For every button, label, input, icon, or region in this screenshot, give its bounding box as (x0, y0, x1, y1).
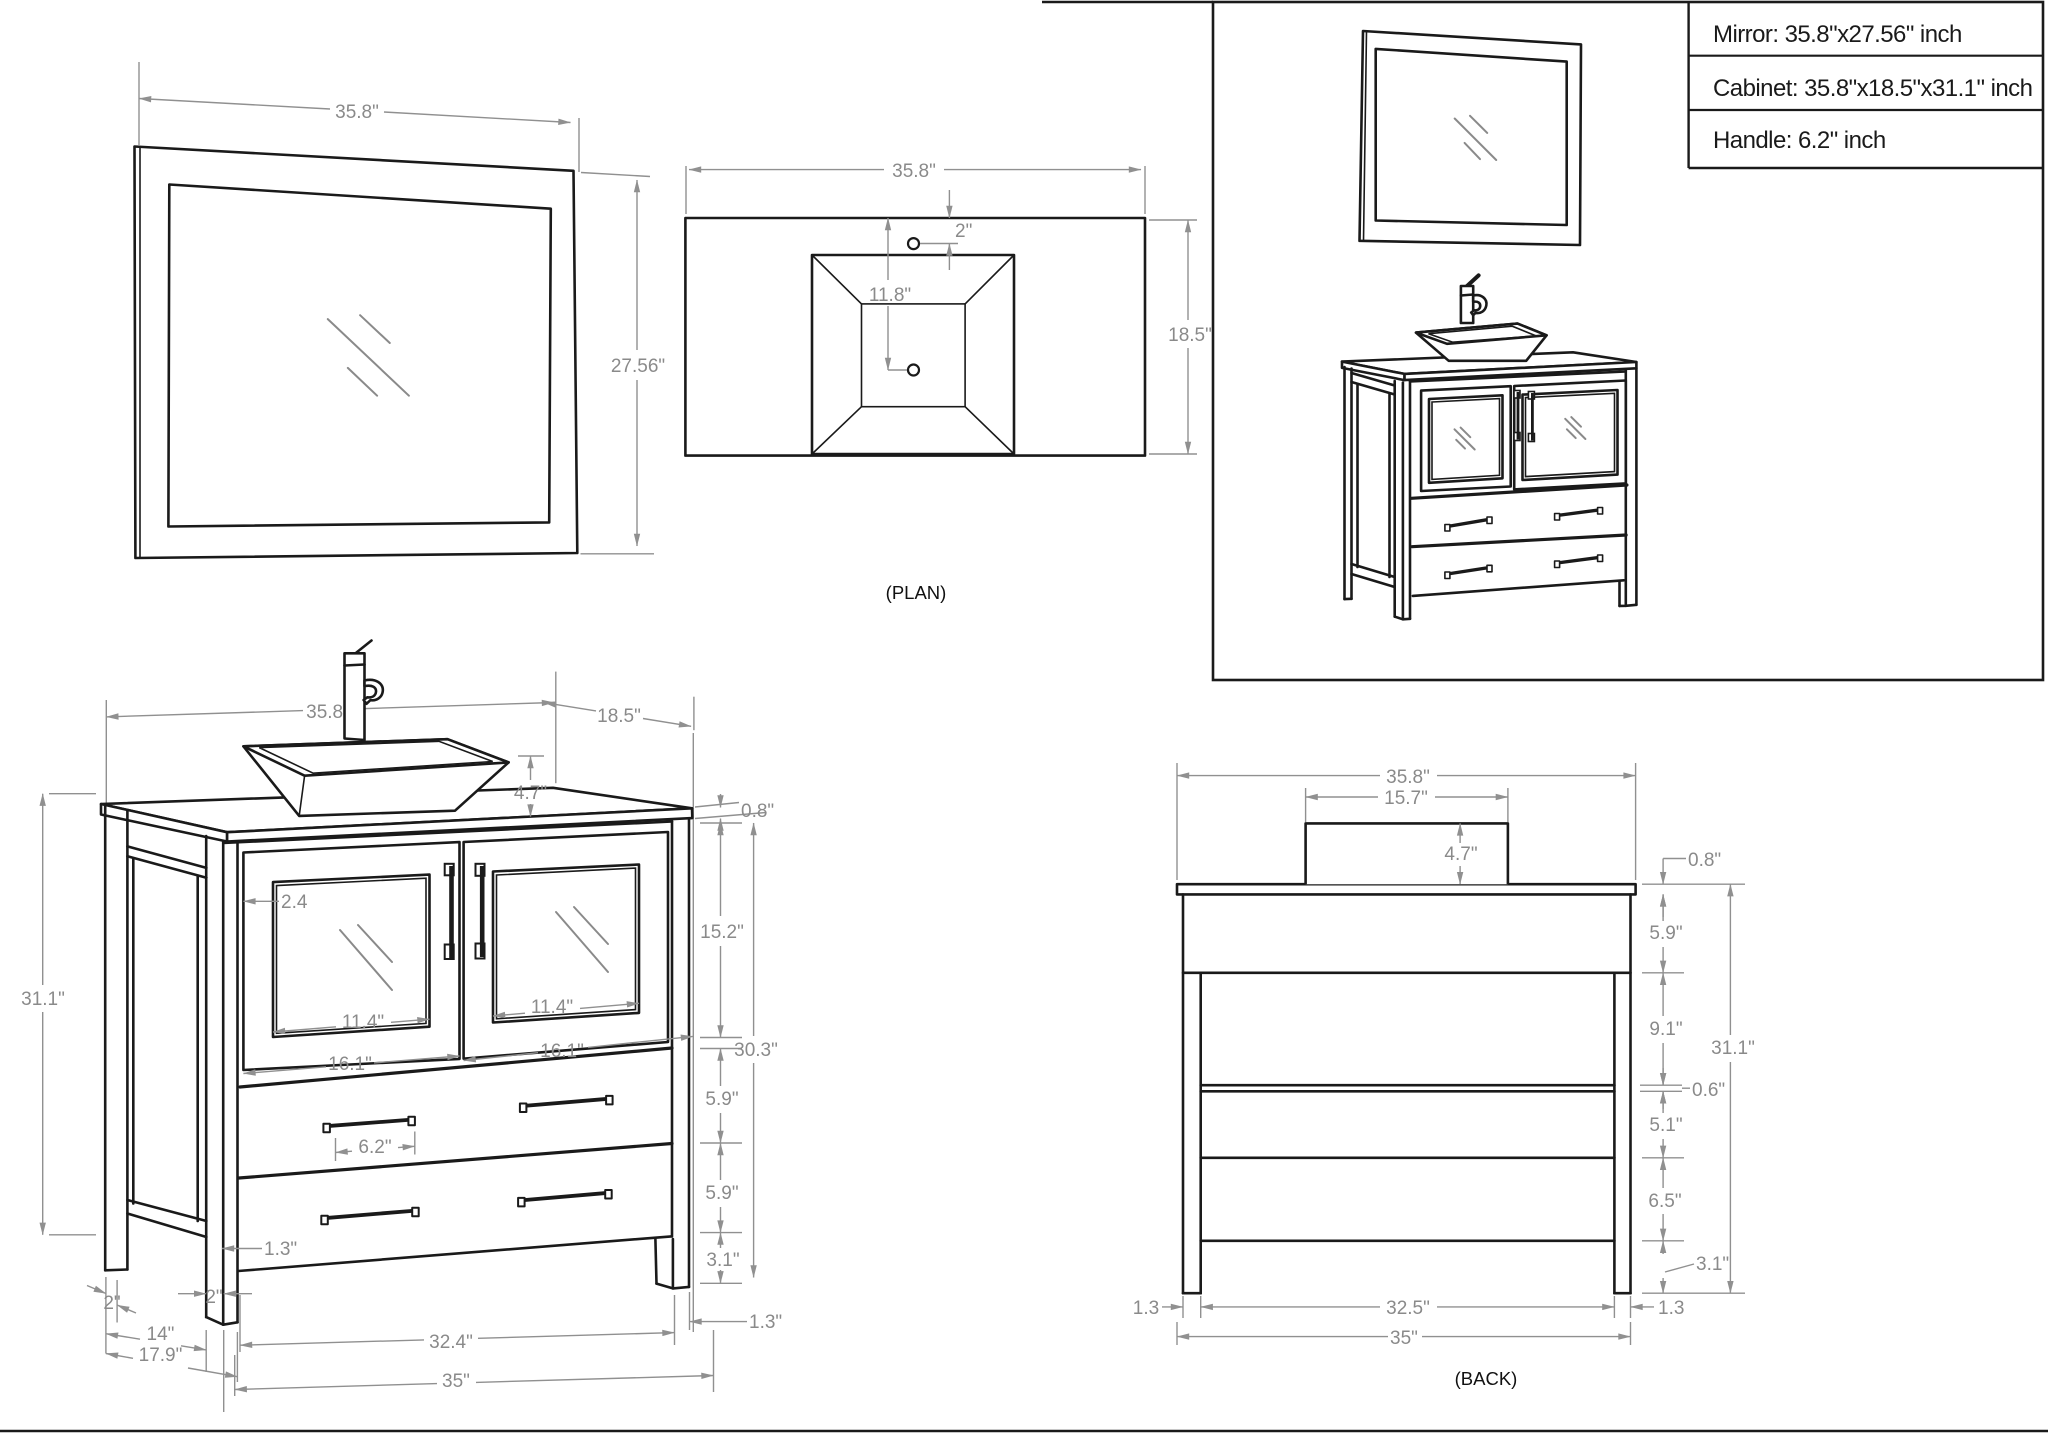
svg-text:5.9": 5.9" (705, 1089, 738, 1110)
svg-text:14": 14" (147, 1324, 175, 1345)
svg-text:18.5": 18.5" (597, 706, 641, 727)
svg-text:5.9": 5.9" (705, 1183, 738, 1204)
svg-text:17.9": 17.9" (139, 1345, 183, 1366)
svg-text:(PLAN): (PLAN) (886, 582, 947, 603)
svg-text:35.8": 35.8" (335, 102, 379, 123)
svg-text:11.8": 11.8" (869, 285, 911, 306)
svg-text:3.1": 3.1" (706, 1250, 739, 1271)
svg-text:Cabinet: 35.8"x18.5"x31.1" in: Cabinet: 35.8"x18.5"x31.1" inch (1713, 75, 2032, 102)
svg-text:0.8": 0.8" (741, 801, 774, 822)
svg-text:1.3: 1.3 (1133, 1298, 1159, 1319)
svg-text:6.2": 6.2" (358, 1137, 391, 1158)
svg-text:31.1": 31.1" (1711, 1038, 1755, 1059)
svg-text:16.1": 16.1" (328, 1054, 372, 1075)
svg-text:11.4": 11.4" (531, 997, 573, 1018)
svg-text:2": 2" (205, 1287, 222, 1308)
svg-text:35.8": 35.8" (1386, 767, 1430, 788)
svg-text:2": 2" (955, 221, 972, 242)
svg-text:1.3": 1.3" (264, 1239, 297, 1260)
svg-text:16.1": 16.1" (540, 1041, 584, 1062)
svg-text:Handle: 6.2" inch: Handle: 6.2" inch (1713, 127, 1886, 154)
svg-text:1.3": 1.3" (749, 1312, 782, 1333)
svg-text:1.3: 1.3 (1658, 1298, 1684, 1319)
svg-text:30.3": 30.3" (734, 1040, 778, 1061)
svg-text:Mirror: 35.8"x27.56" inch: Mirror: 35.8"x27.56" inch (1713, 21, 1962, 48)
svg-text:32.4": 32.4" (429, 1332, 473, 1353)
svg-text:0.8": 0.8" (1688, 850, 1721, 871)
svg-text:0.6": 0.6" (1692, 1080, 1725, 1101)
svg-text:6.5": 6.5" (1648, 1191, 1681, 1212)
svg-text:2.4: 2.4 (281, 892, 308, 913)
svg-text:5.9": 5.9" (1649, 923, 1682, 944)
svg-text:5.1": 5.1" (1649, 1115, 1682, 1136)
svg-text:11.4": 11.4" (342, 1012, 384, 1033)
svg-text:35": 35" (442, 1371, 470, 1392)
svg-text:31.1": 31.1" (21, 989, 65, 1010)
svg-text:32.5": 32.5" (1386, 1298, 1430, 1319)
svg-text:35": 35" (1390, 1328, 1418, 1349)
svg-text:15.7": 15.7" (1384, 788, 1428, 809)
svg-text:3.1": 3.1" (1696, 1254, 1729, 1275)
svg-text:2": 2" (103, 1293, 120, 1314)
svg-text:15.2": 15.2" (700, 922, 744, 943)
svg-text:27.56": 27.56" (611, 356, 665, 377)
svg-text:18.5": 18.5" (1168, 325, 1212, 346)
svg-text:35.8": 35.8" (892, 161, 936, 182)
svg-text:4.7": 4.7" (1444, 844, 1477, 865)
svg-text:9.1": 9.1" (1649, 1019, 1682, 1040)
svg-text:(BACK): (BACK) (1455, 1368, 1518, 1389)
svg-text:4.7": 4.7" (514, 783, 547, 804)
